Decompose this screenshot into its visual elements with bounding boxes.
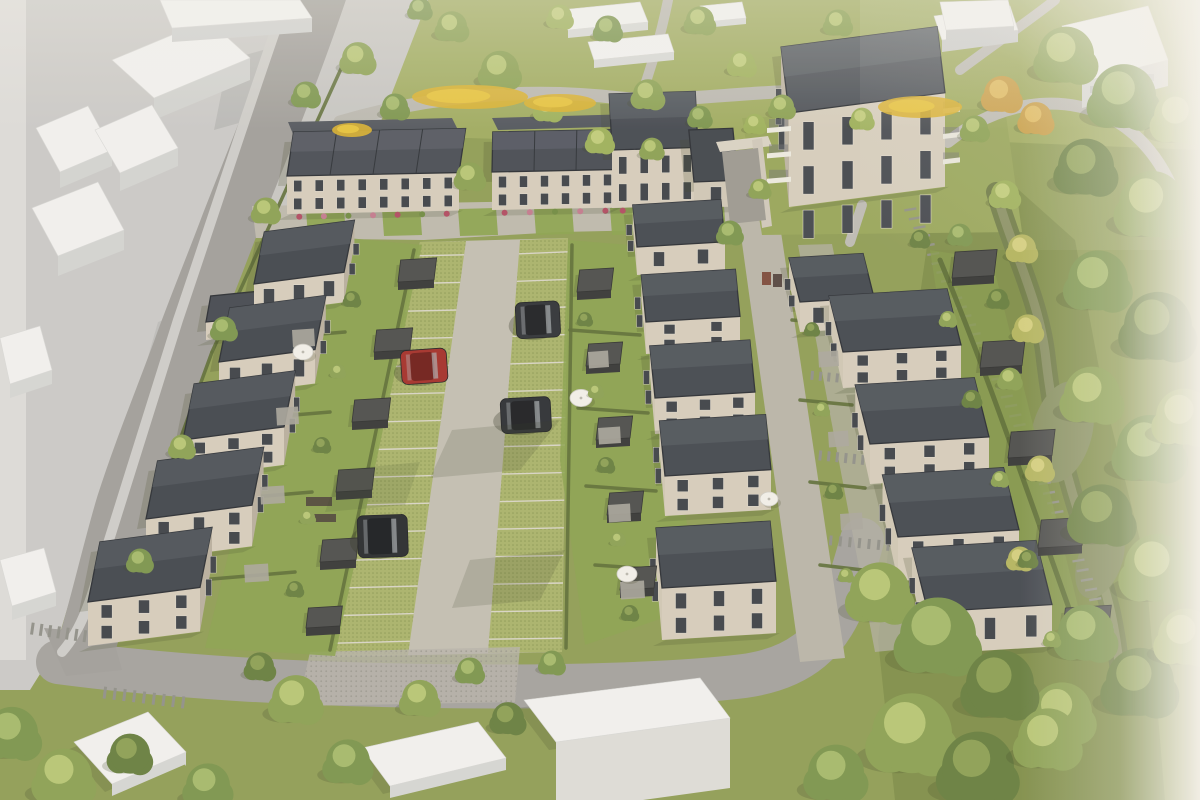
render-layers — [0, 0, 1200, 800]
scene-svg — [0, 0, 1200, 800]
aerial-development-rendering — [0, 0, 1200, 800]
haze-global — [0, 0, 1200, 800]
